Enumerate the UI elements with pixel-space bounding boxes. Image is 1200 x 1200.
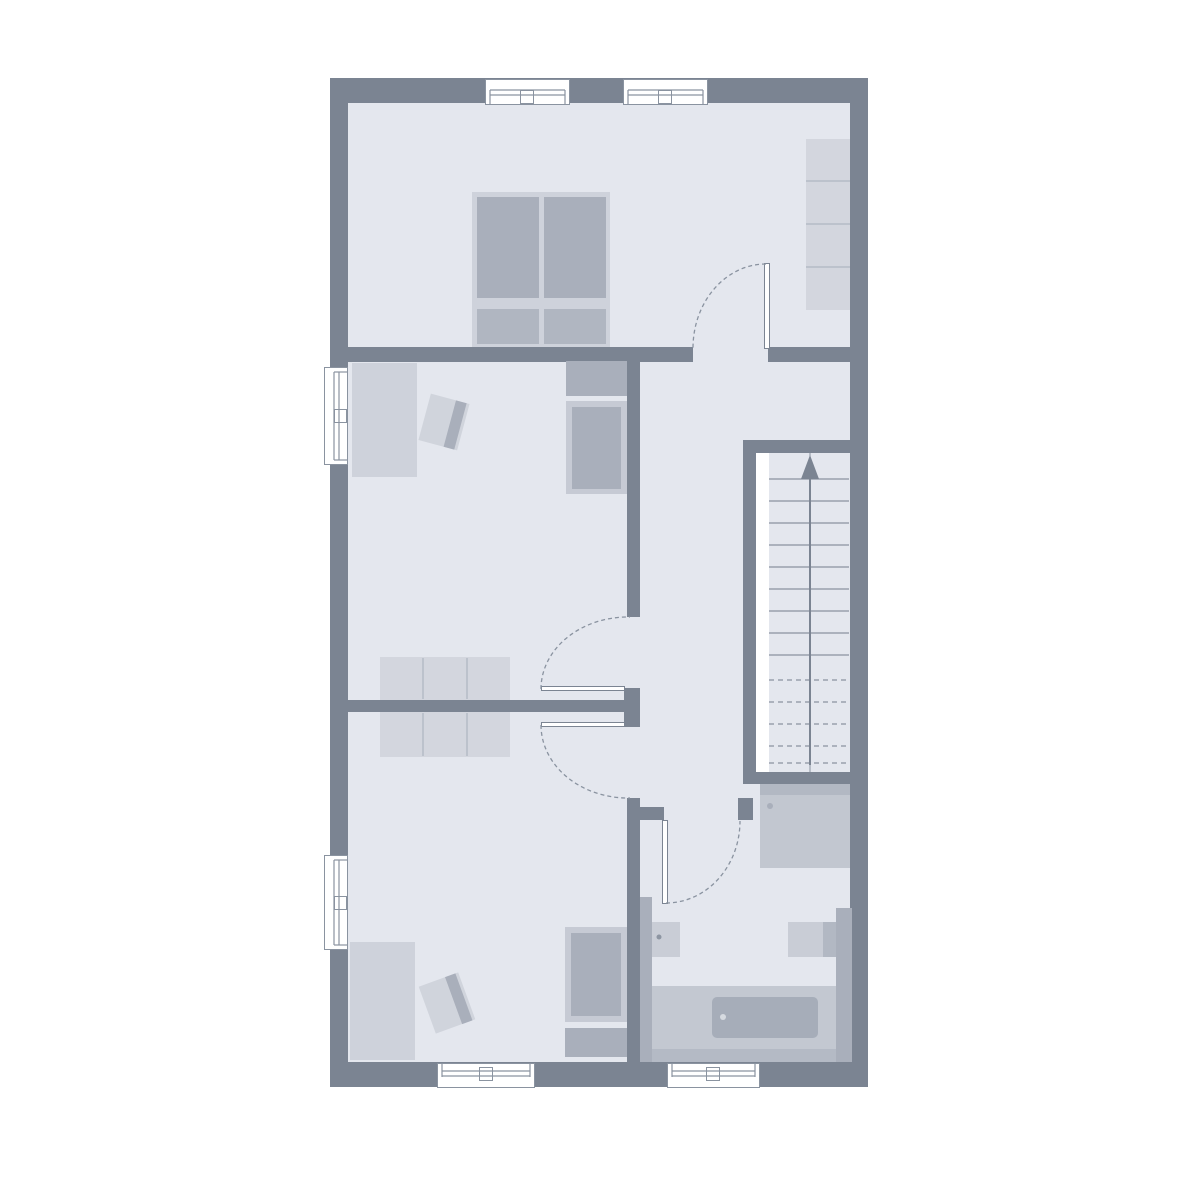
dresser-bottom-room bbox=[380, 712, 510, 757]
washbasin-left bbox=[652, 922, 680, 957]
single-bed-headboard-bottom bbox=[565, 1028, 627, 1057]
wall-bedroom-bottom-left bbox=[348, 347, 693, 362]
double-bed-mattress-left bbox=[477, 197, 539, 298]
washbasin-right bbox=[788, 922, 823, 957]
double-bed-mattress-right bbox=[544, 197, 606, 298]
single-bed-headboard-middle bbox=[566, 361, 627, 396]
wall-stairwell-top bbox=[743, 440, 850, 453]
dresser-middle-room bbox=[380, 657, 510, 700]
door-leaf-middle-room bbox=[541, 686, 625, 691]
bathtub bbox=[712, 997, 818, 1038]
wall-hallway-west bbox=[627, 362, 640, 617]
wall-bedroom-bottom-right bbox=[768, 347, 850, 362]
wall-rooms-divider bbox=[348, 700, 624, 712]
window-bottom-1-pane bbox=[479, 1067, 493, 1081]
door-leaf-bathroom bbox=[662, 820, 668, 904]
wall-bathroom-west bbox=[627, 798, 640, 1062]
bath-bottom-band bbox=[652, 1049, 836, 1062]
desk-middle-room bbox=[352, 363, 417, 477]
bath-ledge-left bbox=[640, 897, 652, 1062]
window-bottom-2-pane bbox=[706, 1067, 720, 1081]
wall-bathroom-door-jamb-left bbox=[627, 807, 664, 820]
window-top-2-pane bbox=[658, 90, 672, 104]
wall-center-door-jamb bbox=[624, 688, 640, 727]
shower bbox=[760, 795, 850, 868]
door-leaf-bottom-room bbox=[541, 722, 625, 727]
shower-top-band bbox=[760, 784, 850, 795]
washbasin-right-side bbox=[823, 922, 836, 957]
bath-pillar-right bbox=[836, 908, 852, 1062]
single-bed-mattress-middle bbox=[572, 407, 621, 489]
stair-side-strip bbox=[756, 453, 769, 772]
door-leaf-bedroom bbox=[764, 263, 770, 349]
double-bed-pillow-left bbox=[477, 309, 539, 344]
wall-stairwell-bottom bbox=[743, 772, 850, 784]
window-left-1-pane bbox=[334, 409, 347, 423]
wardrobe-shelves bbox=[806, 139, 850, 310]
wall-stairwell-left bbox=[743, 453, 756, 782]
window-left-2-pane bbox=[334, 896, 347, 910]
floor-plan-canvas bbox=[0, 0, 1200, 1200]
window-top-1-pane bbox=[520, 90, 534, 104]
wall-bathroom-door-jamb-right bbox=[738, 798, 753, 820]
double-bed-pillow-right bbox=[544, 309, 606, 344]
single-bed-mattress-bottom bbox=[571, 933, 621, 1016]
desk-bottom-room bbox=[350, 942, 415, 1060]
